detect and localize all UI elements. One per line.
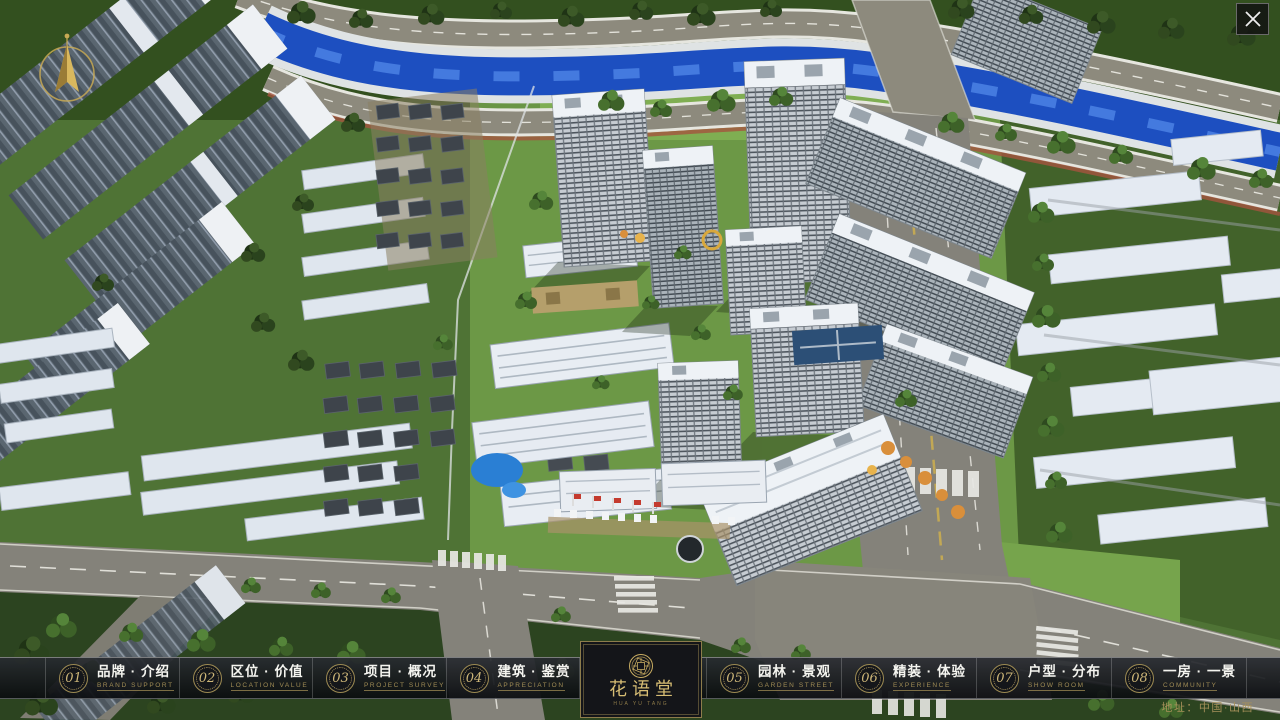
- nav-label-zh: 户型 · 分布: [1028, 665, 1101, 680]
- project-subtitle: HUA YU TANG: [613, 701, 668, 707]
- compass-north-indicator: [34, 28, 100, 112]
- nav-num-badge: 04: [460, 664, 489, 693]
- project-logo-panel[interactable]: 花语堂 HUA YU TANG: [580, 641, 702, 718]
- nav-label-en: APPRECIATION: [498, 682, 565, 691]
- close-button[interactable]: [1236, 3, 1269, 35]
- nav-item-interior[interactable]: 06 精装 · 体验EXPERIENCE: [841, 658, 976, 698]
- nav-label-en: LOCATION VALUE: [231, 682, 309, 691]
- nav-num-badge: 01: [59, 664, 88, 693]
- tower: [750, 303, 865, 436]
- nav-group-right: 05 园林 · 景观GARDEN STREET 06 精装 · 体验EXPERI…: [706, 658, 1247, 698]
- nav-item-architecture[interactable]: 04 建筑 · 鉴赏APPRECIATION: [446, 658, 580, 698]
- nav-num-badge: 03: [326, 664, 355, 693]
- nav-label-zh: 一房 · 一景: [1163, 665, 1236, 680]
- nav-label-zh: 项目 · 概况: [364, 665, 445, 680]
- presentation-root: 01 品牌 · 介绍BRAND SUPPORT 02 区位 · 价值LOCATI…: [0, 0, 1280, 720]
- project-address: 地址：中国·山西: [1161, 699, 1254, 715]
- nav-label-en: SHOW ROOM: [1028, 682, 1085, 691]
- nav-label-en: BRAND SUPPORT: [97, 682, 174, 691]
- project-title: 花语堂: [609, 681, 678, 699]
- map-viewport[interactable]: [0, 0, 1280, 720]
- nav-item-location[interactable]: 02 区位 · 价值LOCATION VALUE: [179, 658, 313, 698]
- nav-label-zh: 区位 · 价值: [231, 665, 309, 680]
- nav-item-views[interactable]: 08 一房 · 一景COMMUNITY: [1111, 658, 1246, 698]
- nav-num-badge: 08: [1125, 664, 1154, 693]
- nav-label-en: EXPERIENCE: [893, 682, 951, 691]
- nav-item-garden[interactable]: 05 园林 · 景观GARDEN STREET: [706, 658, 841, 698]
- nav-num-badge: 02: [193, 664, 222, 693]
- nav-label-en: GARDEN STREET: [758, 682, 834, 691]
- nav-label-zh: 园林 · 景观: [758, 665, 834, 680]
- nav-label-zh: 品牌 · 介绍: [97, 665, 174, 680]
- project-seal-icon: [628, 653, 654, 679]
- nav-item-brand[interactable]: 01 品牌 · 介绍BRAND SUPPORT: [45, 658, 179, 698]
- nav-group-left: 01 品牌 · 介绍BRAND SUPPORT 02 区位 · 价值LOCATI…: [45, 658, 580, 698]
- nav-num-badge: 06: [855, 664, 884, 693]
- nav-label-zh: 精装 · 体验: [893, 665, 966, 680]
- nav-label-en: COMMUNITY: [1163, 682, 1217, 691]
- nav-item-project[interactable]: 03 项目 · 概况PROJECT SURVEY: [312, 658, 446, 698]
- nav-label-zh: 建筑 · 鉴赏: [498, 665, 571, 680]
- nav-label-en: PROJECT SURVEY: [364, 682, 445, 691]
- nav-num-badge: 05: [720, 664, 749, 693]
- nav-num-badge: 07: [990, 664, 1019, 693]
- tower: [643, 146, 724, 308]
- nav-item-floorplan[interactable]: 07 户型 · 分布SHOW ROOM: [976, 658, 1111, 698]
- close-icon: [1243, 9, 1263, 29]
